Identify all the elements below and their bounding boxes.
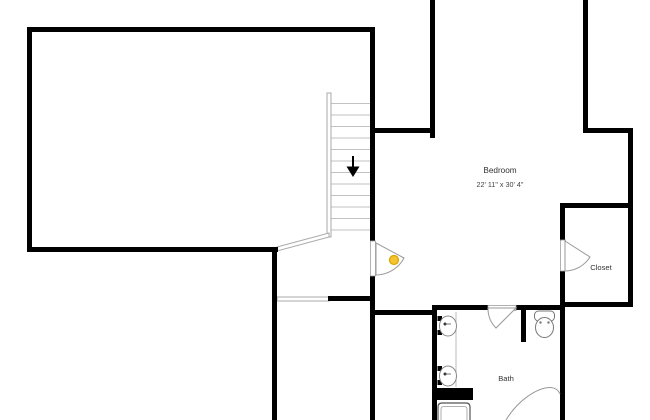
wall-closet-top: [562, 203, 630, 208]
wall-bedroom-left: [430, 0, 435, 138]
wall-bath-right: [560, 271, 565, 420]
shower-icon: [438, 403, 470, 420]
wall-bath-top-left: [432, 305, 488, 310]
half-wall-opening: [277, 297, 329, 301]
wall-stair-right-upper: [370, 27, 375, 241]
toilet-icon: [535, 311, 555, 338]
wall-lower-left-vertical: [272, 247, 277, 420]
wall-left-room-left: [27, 27, 32, 252]
camera-marker[interactable]: [390, 256, 399, 265]
wall-left-room-top: [27, 27, 375, 32]
sink-icon: [438, 316, 457, 336]
wall-left-room-bottom: [27, 247, 278, 252]
stair-guard-rail: [277, 233, 329, 251]
closet-label: Closet: [590, 263, 612, 272]
wall-far-right: [628, 128, 633, 307]
bedroom-door-jamb: [371, 241, 376, 276]
sink-icon: [438, 366, 457, 386]
closet-door-swing: [565, 241, 590, 271]
wall-half-wall-stub: [328, 296, 372, 301]
bath-vanity: [438, 312, 457, 387]
wall-closet-bottom: [560, 302, 633, 307]
stairs-down-arrow-icon: [347, 156, 360, 177]
wall-hall-bottom: [372, 310, 434, 315]
floor-plan-canvas: Bedroom 22' 11" x 30' 4" Closet Bath: [0, 0, 650, 420]
wall-northeast-jut: [585, 128, 633, 133]
wall-bedroom-right-upper: [583, 0, 588, 133]
bath-cabinet-fixture: [437, 388, 473, 400]
staircase: [277, 93, 370, 251]
tub-edge: [506, 387, 560, 420]
bedroom-label: Bedroom: [483, 166, 516, 175]
wall-bath-left: [432, 307, 437, 420]
wall-toilet-stub: [521, 308, 526, 342]
wall-closet-left-upper: [560, 203, 565, 241]
bath-door-swing: [488, 308, 516, 328]
stair-rail: [327, 93, 331, 237]
bath-label: Bath: [498, 374, 514, 383]
bedroom-dimensions: 22' 11" x 30' 4": [477, 180, 524, 189]
wall-hall-top: [372, 128, 433, 133]
